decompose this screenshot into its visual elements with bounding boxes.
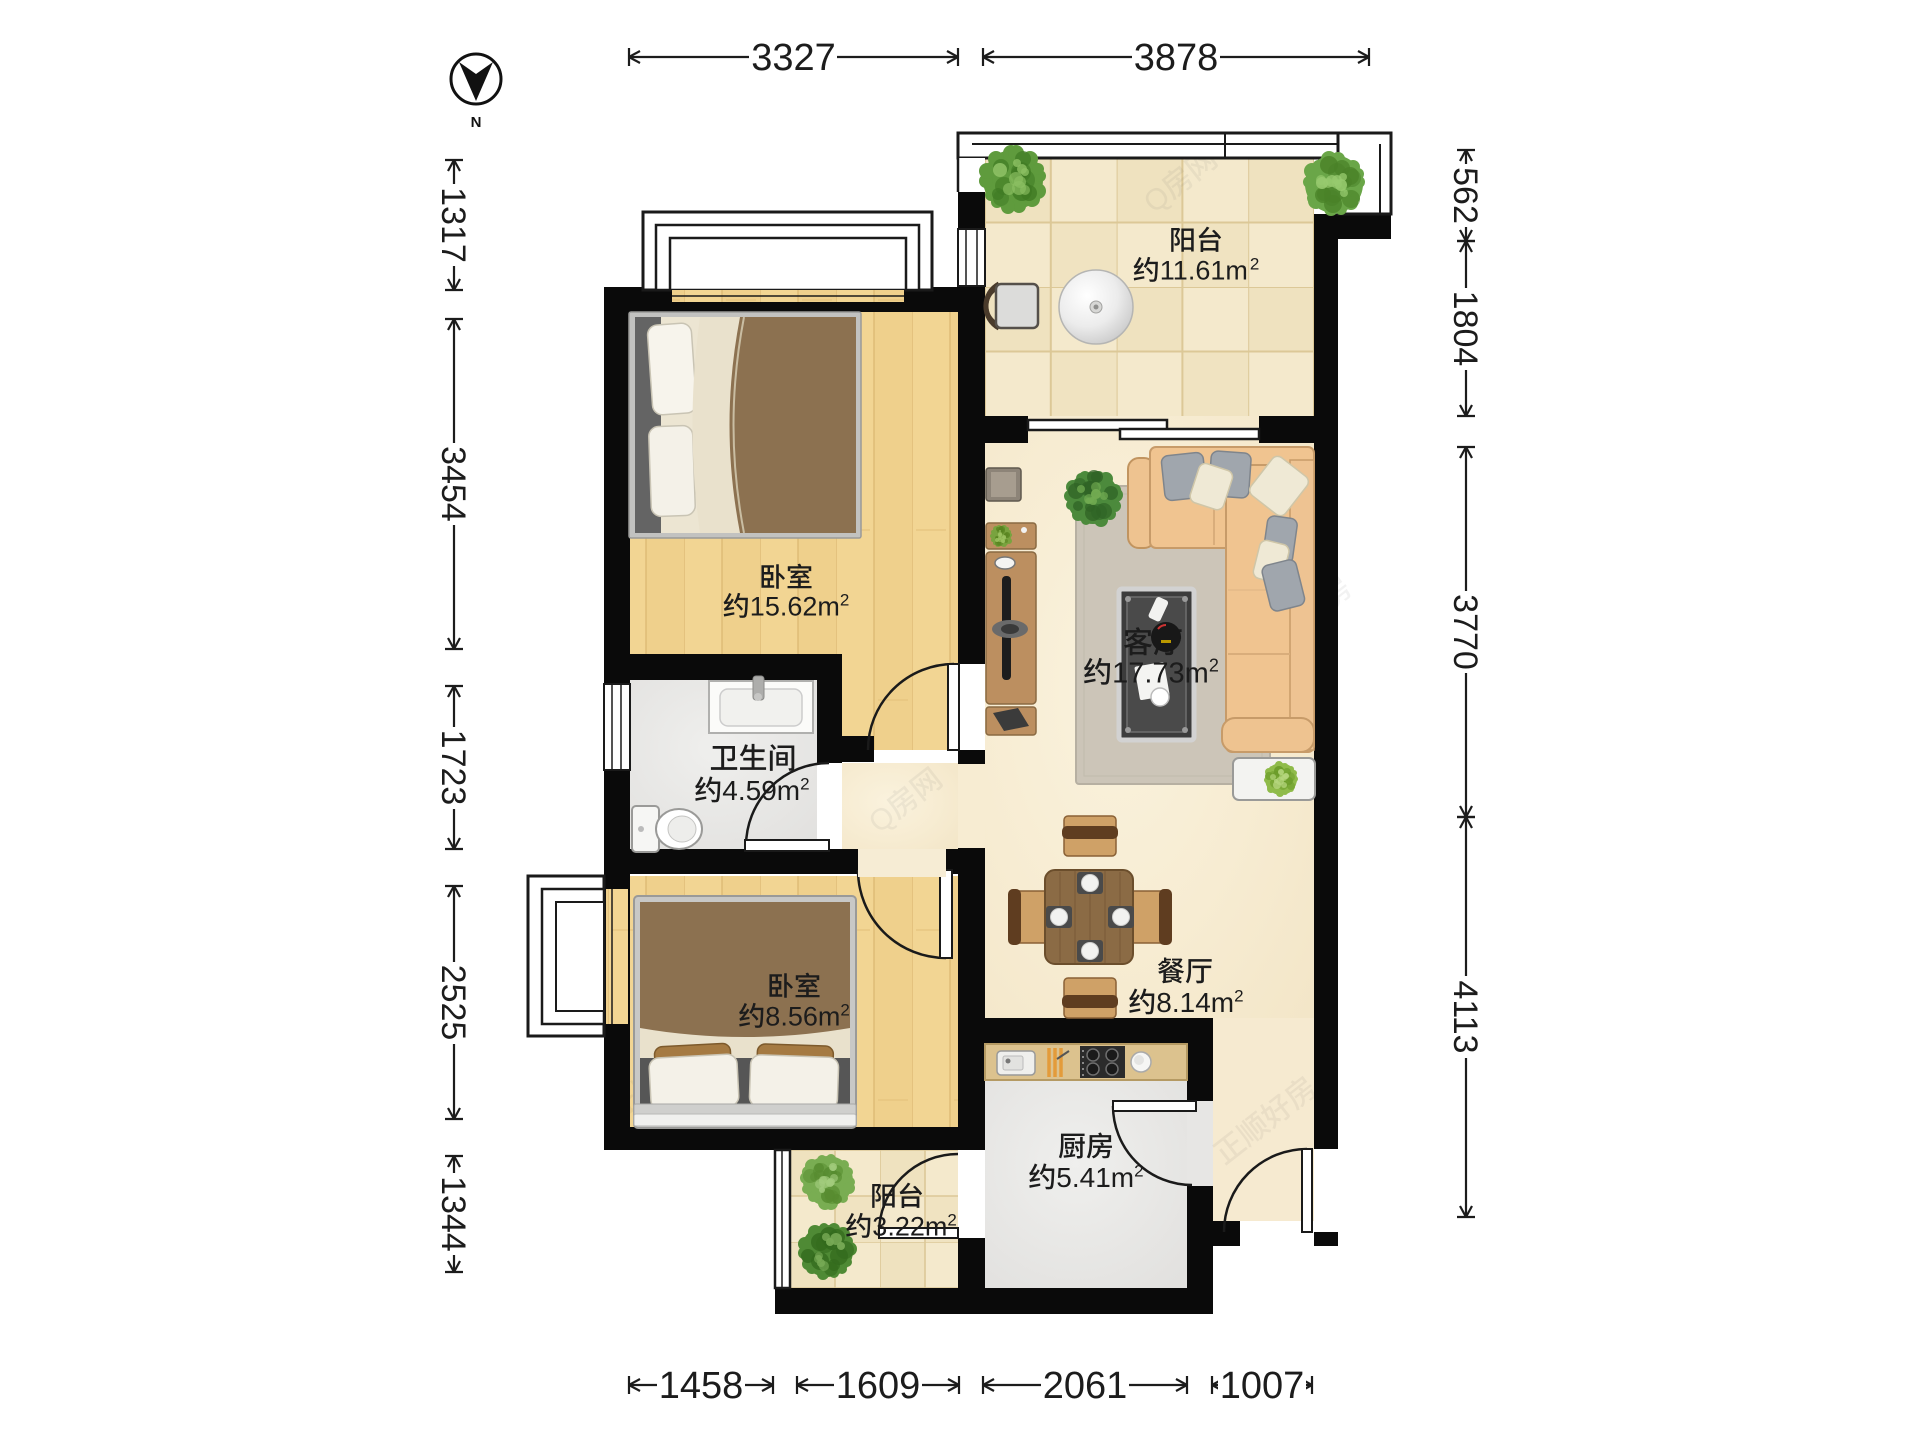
svg-text:2525: 2525 bbox=[434, 965, 472, 1041]
svg-text:1609: 1609 bbox=[836, 1365, 921, 1407]
svg-text:2061: 2061 bbox=[1043, 1365, 1128, 1407]
svg-text:N: N bbox=[471, 114, 482, 131]
svg-text:5.41m: 5.41m bbox=[1056, 1162, 1134, 1193]
svg-text:17.73m: 17.73m bbox=[1112, 657, 1209, 689]
svg-text:1723: 1723 bbox=[434, 730, 472, 806]
svg-text:4113: 4113 bbox=[1446, 980, 1484, 1053]
svg-text:3327: 3327 bbox=[751, 37, 836, 79]
svg-text:1344: 1344 bbox=[434, 1176, 472, 1252]
svg-text:1317: 1317 bbox=[434, 187, 472, 263]
svg-text:1007: 1007 bbox=[1220, 1365, 1305, 1407]
svg-text:2: 2 bbox=[800, 774, 809, 793]
svg-text:2: 2 bbox=[840, 591, 849, 610]
svg-text:2: 2 bbox=[947, 1211, 956, 1230]
svg-text:3878: 3878 bbox=[1134, 37, 1219, 79]
svg-text:1458: 1458 bbox=[659, 1365, 744, 1407]
svg-text:4.59m: 4.59m bbox=[722, 775, 800, 806]
svg-text:2: 2 bbox=[1250, 255, 1259, 274]
svg-text:15.62m: 15.62m bbox=[750, 592, 840, 622]
svg-text:11.61m: 11.61m bbox=[1160, 256, 1248, 286]
svg-text:2: 2 bbox=[1209, 655, 1219, 675]
svg-text:2: 2 bbox=[1134, 1161, 1143, 1180]
svg-text:8.56m: 8.56m bbox=[765, 1002, 840, 1032]
svg-text:562: 562 bbox=[1446, 167, 1484, 224]
svg-text:3770: 3770 bbox=[1446, 594, 1484, 670]
svg-text:1804: 1804 bbox=[1446, 291, 1484, 367]
svg-text:3454: 3454 bbox=[434, 446, 472, 522]
svg-text:8.14m: 8.14m bbox=[1156, 987, 1234, 1018]
svg-text:2: 2 bbox=[840, 1001, 849, 1020]
svg-text:3.22m: 3.22m bbox=[872, 1212, 947, 1242]
svg-text:2: 2 bbox=[1234, 986, 1243, 1005]
